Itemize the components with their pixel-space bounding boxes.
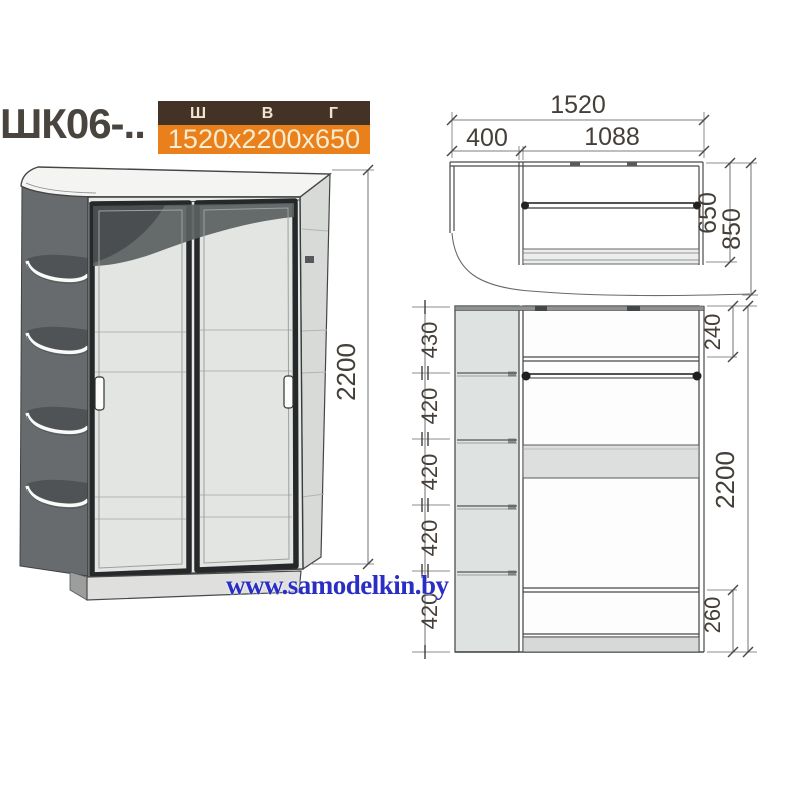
- technical-drawing: 2200 1520: [0, 0, 800, 800]
- dim-front-seg-3: 420: [417, 454, 442, 491]
- plan-view: 1520 400 1088 650 850: [447, 91, 758, 300]
- dim-front-seg-2: 420: [417, 388, 442, 425]
- dim-plan-width-corner: 400: [466, 124, 508, 152]
- dim-front-bottom-section: 260: [700, 597, 725, 634]
- sliding-door-right: [197, 201, 296, 570]
- dim-plan-width-total: 1520: [550, 91, 606, 119]
- watermark: www.samodelkin.by: [226, 570, 449, 601]
- top-panel: [21, 167, 330, 197]
- dim-plan-depth-total: 850: [718, 208, 746, 250]
- front-left-dims: 430 420 420 420 420: [412, 300, 450, 659]
- side-panel: [300, 174, 330, 569]
- corner-column: [455, 306, 519, 652]
- side-fitting-mark: [305, 256, 314, 263]
- dim-front-top-section: 240: [700, 314, 725, 351]
- dim-plan-width-doors: 1088: [584, 123, 640, 151]
- plan-front-band: [523, 249, 699, 264]
- door-handle-left: [95, 377, 104, 410]
- perspective-view: 2200: [20, 165, 374, 600]
- base-band: [523, 637, 699, 652]
- door-handle-right: [284, 376, 293, 408]
- middle-band: [523, 445, 699, 478]
- dim-front-height-total: 2200: [710, 451, 740, 509]
- dim-front-seg-4: 420: [417, 520, 442, 557]
- front-right-dims: 240 2200 260: [700, 301, 757, 657]
- dim-perspective-height: 2200: [331, 343, 361, 401]
- corner-section-panel: [20, 186, 88, 576]
- main-section: [523, 306, 699, 652]
- page: ШК06-.. Ш В Г 1520x2200x650: [0, 0, 800, 800]
- dim-front-seg-1: 430: [417, 322, 442, 359]
- front-view: 430 420 420 420 420 240 2200 260: [412, 300, 757, 659]
